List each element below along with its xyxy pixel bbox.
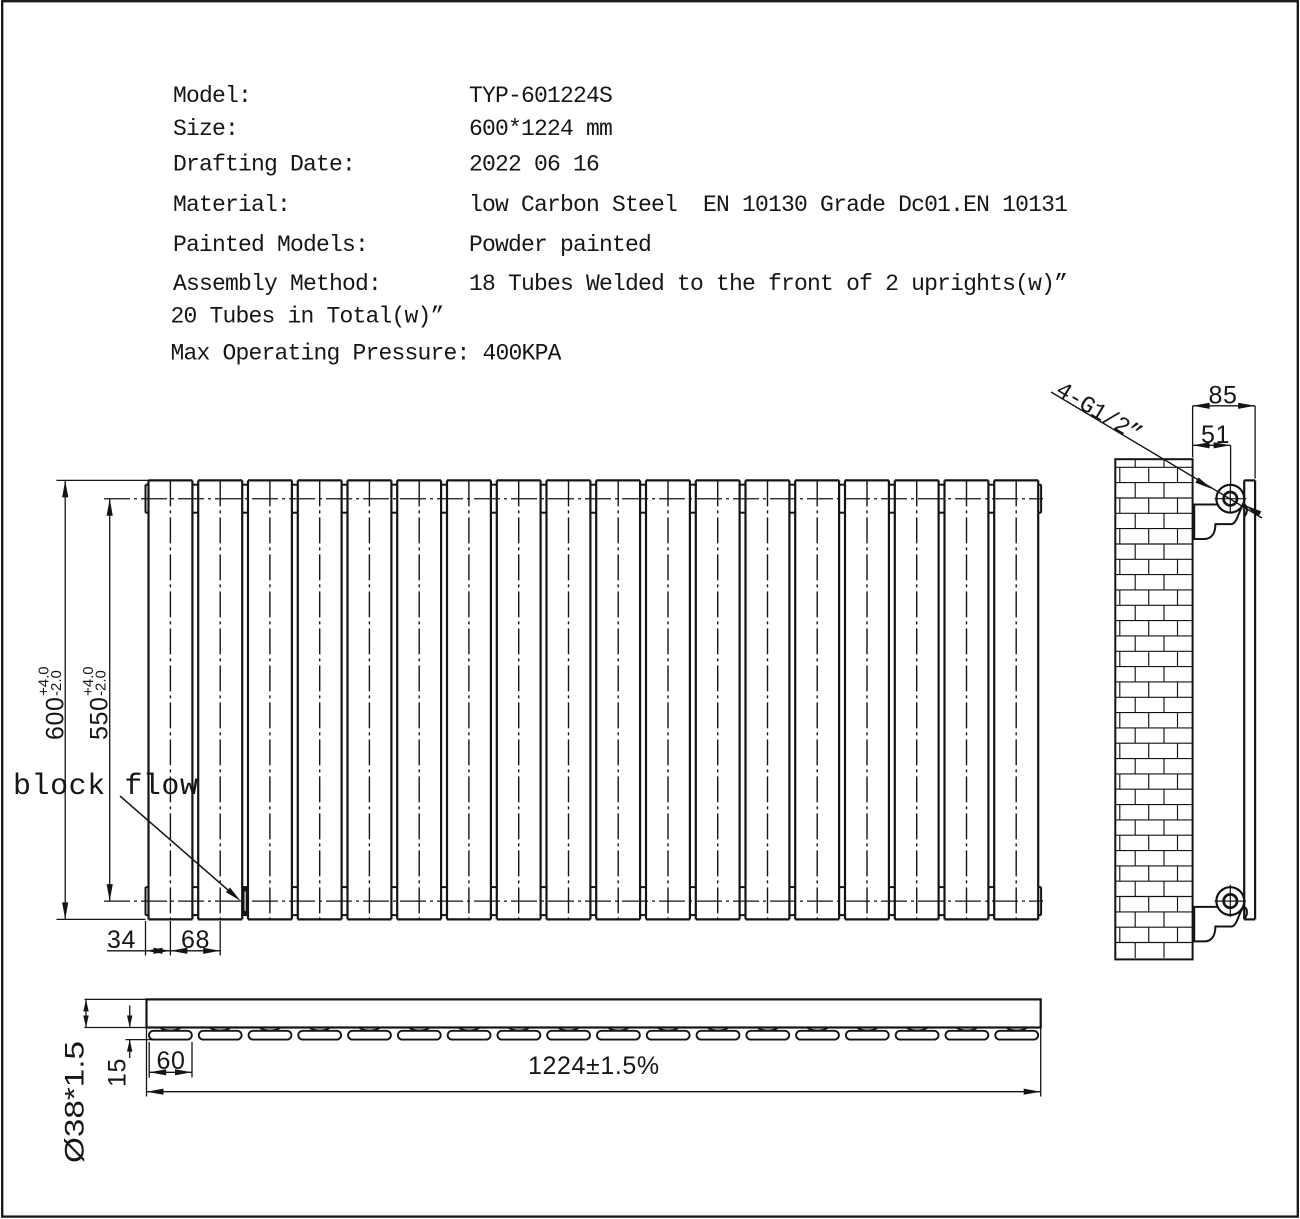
svg-text:85: 85 — [1209, 382, 1238, 410]
svg-text:TYP-601224S: TYP-601224S — [469, 83, 612, 109]
svg-text:600*1224 mm: 600*1224 mm — [469, 116, 612, 142]
svg-text:34: 34 — [107, 926, 136, 954]
svg-text:18 Tubes Welded to the front o: 18 Tubes Welded to the front of 2 uprigh… — [469, 271, 1067, 297]
svg-text:60: 60 — [157, 1047, 186, 1075]
svg-text:low Carbon Steel EN 10130 Gra: low Carbon Steel EN 10130 Grade Dc01.EN … — [469, 192, 1067, 218]
svg-text:Drafting Date:: Drafting Date: — [173, 152, 355, 178]
svg-text:600: 600 — [42, 696, 70, 740]
svg-text:20 Tubes in Total(w)”: 20 Tubes in Total(w)” — [171, 304, 444, 330]
svg-text:Powder painted: Powder painted — [469, 232, 651, 258]
svg-text:Max Operating Pressure: 400KPA: Max Operating Pressure: 400KPA — [171, 341, 562, 367]
svg-text:51: 51 — [1201, 421, 1230, 449]
svg-text:block flow: block flow — [13, 770, 198, 804]
svg-text:-2.0: -2.0 — [93, 670, 110, 696]
svg-text:Ø38*1.5: Ø38*1.5 — [60, 1041, 90, 1163]
svg-text:2022 06 16: 2022 06 16 — [469, 152, 599, 178]
svg-text:550: 550 — [86, 696, 114, 740]
svg-text:Painted Models:: Painted Models: — [173, 232, 368, 258]
svg-text:1224±1.5%: 1224±1.5% — [528, 1052, 660, 1080]
svg-text:Size:: Size: — [173, 116, 238, 142]
svg-text:Model:: Model: — [173, 83, 251, 109]
svg-text:Material:: Material: — [173, 192, 290, 218]
svg-text:15: 15 — [104, 1058, 132, 1087]
svg-text:68: 68 — [181, 926, 210, 954]
svg-text:-2.0: -2.0 — [48, 670, 65, 696]
svg-text:Assembly Method:: Assembly Method: — [173, 271, 381, 297]
